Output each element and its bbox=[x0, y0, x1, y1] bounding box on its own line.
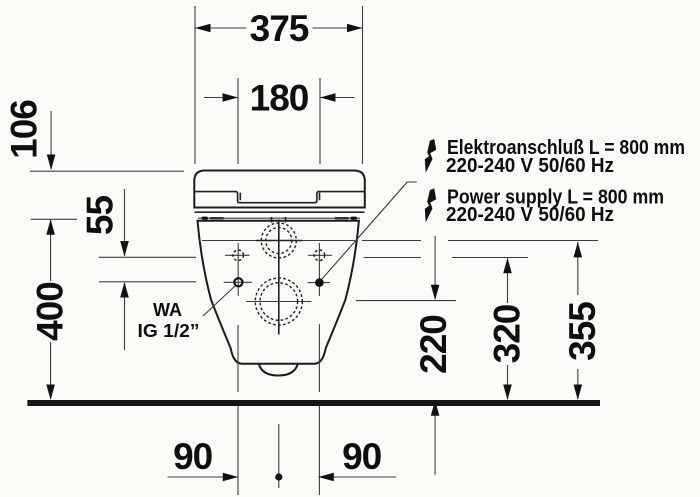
svg-text:355: 355 bbox=[562, 302, 603, 361]
svg-text:IG 1/2”: IG 1/2” bbox=[138, 321, 200, 341]
svg-text:90: 90 bbox=[173, 436, 213, 477]
svg-text:220: 220 bbox=[413, 315, 454, 374]
svg-text:220-240 V 50/60 Hz: 220-240 V 50/60 Hz bbox=[446, 155, 614, 177]
svg-text:220-240 V 50/60 Hz: 220-240 V 50/60 Hz bbox=[446, 204, 614, 226]
svg-text:WA: WA bbox=[153, 300, 182, 320]
svg-text:55: 55 bbox=[80, 196, 121, 236]
svg-text:320: 320 bbox=[487, 304, 528, 363]
svg-text:400: 400 bbox=[30, 282, 71, 341]
svg-text:90: 90 bbox=[342, 436, 382, 477]
svg-text:106: 106 bbox=[4, 100, 45, 159]
svg-text:375: 375 bbox=[250, 8, 309, 49]
svg-text:180: 180 bbox=[250, 78, 309, 119]
